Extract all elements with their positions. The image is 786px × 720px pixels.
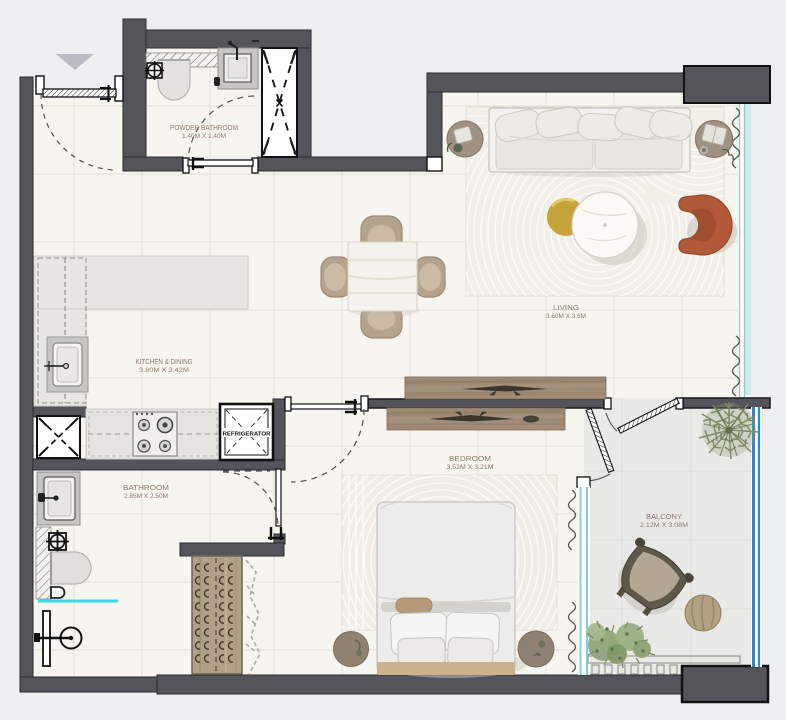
svg-text:1.40M X 1.40M: 1.40M X 1.40M: [182, 133, 226, 140]
svg-text:BATHROOM: BATHROOM: [123, 483, 169, 492]
svg-text:KITCHEN & DINING: KITCHEN & DINING: [136, 357, 193, 366]
svg-text:3.80M X 3.42M: 3.80M X 3.42M: [139, 367, 189, 374]
svg-text:LIVING: LIVING: [553, 303, 579, 312]
svg-text:2.12M X 3.08M: 2.12M X 3.08M: [640, 522, 688, 529]
svg-text:3.60M X 3.6M: 3.60M X 3.6M: [546, 313, 586, 320]
svg-text:2.85M X 2.50M: 2.85M X 2.50M: [124, 493, 168, 500]
svg-text:BALCONY: BALCONY: [646, 512, 682, 521]
svg-text:REFRIGERATOR: REFRIGERATOR: [223, 432, 272, 438]
svg-text:3.52M X 3.21M: 3.52M X 3.21M: [447, 464, 494, 471]
svg-text:BEDROOM: BEDROOM: [449, 454, 491, 463]
svg-text:POWDER BATHROOM: POWDER BATHROOM: [170, 123, 238, 132]
